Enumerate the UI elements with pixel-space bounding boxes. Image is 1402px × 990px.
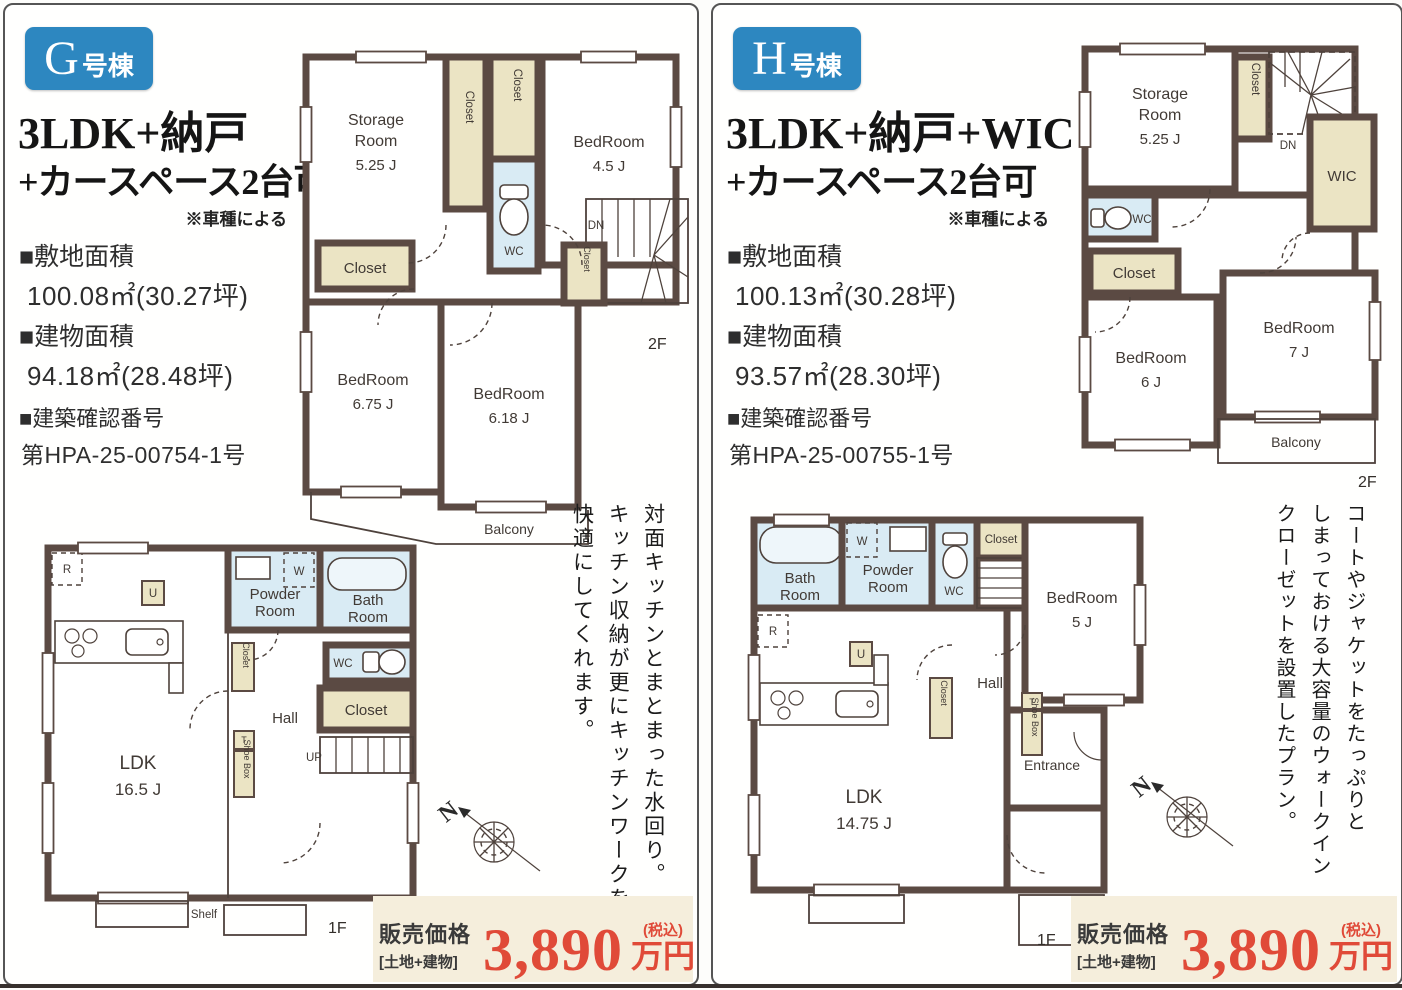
sink-icon: [236, 557, 270, 579]
wic-label: WIC: [1327, 168, 1356, 185]
building-area-value: 94.18㎡(28.48坪): [27, 356, 319, 393]
inner-hall-body: [1007, 808, 1104, 890]
price-sub-label: [土地+建物]: [1077, 951, 1169, 972]
room-size: 5.25 J: [1140, 131, 1181, 148]
floor-label-1f: 1F: [1037, 932, 1056, 949]
room-closet-a: [446, 57, 486, 209]
dn-label: DN: [588, 220, 605, 232]
land-area-label: ■敷地面積: [727, 237, 1027, 273]
floor-plan-h-2f: Storage Room 5.25 J Closet DN WIC WC Clo…: [1060, 37, 1390, 497]
confirmation-number-value: 第HPA-25-00755-1号: [729, 436, 1027, 470]
price-right: (税込) 万円: [631, 919, 695, 974]
toilet-icon: [1091, 207, 1131, 229]
room-label: Powder: [863, 562, 914, 579]
north-compass: N: [1121, 760, 1241, 855]
layout-title-line2: +カースペース2台可: [18, 153, 328, 205]
unit-letter: H: [752, 35, 787, 83]
unit-suffix: 号棟: [82, 34, 134, 83]
building-area-label: ■建物面積: [727, 317, 1027, 353]
shelf-label: Shelf: [191, 909, 218, 921]
shoe-box-label: Shoe Box: [1030, 697, 1040, 737]
land-area-value: 100.08㎡(30.27坪): [27, 276, 319, 313]
car-note: ※車種による: [727, 205, 1049, 230]
price-left: 販売価格 [土地+建物]: [1077, 917, 1169, 972]
bathtub-icon: [328, 558, 406, 590]
feature-description: コートやジャケットをたっぷりと しまっておける大容量のウォークイン クローゼット…: [1265, 503, 1373, 895]
room-label: BedRoom: [473, 386, 544, 403]
room-bedroom-5: [1025, 520, 1140, 700]
compass-spokes: [1167, 797, 1207, 837]
closet-label: Closet: [241, 642, 251, 668]
room-bedroom-618: [441, 302, 578, 507]
fridge-label: R: [769, 626, 777, 638]
stair-treads: [977, 568, 1025, 598]
unit-badge-g: G 号棟: [25, 27, 153, 90]
desc-column: キッチン収納が更にキッチンワークを: [602, 503, 635, 917]
dn-label: DN: [1280, 140, 1297, 152]
price-block: 販売価格 [土地+建物] 3,890 (税込) 万円: [1077, 917, 1393, 976]
desc-column: しまっておける大容量のウォークイン: [1303, 503, 1335, 895]
closet-label: Closet: [939, 680, 949, 706]
deck-outline: [809, 895, 904, 923]
porch-outline: [224, 905, 306, 935]
unit-badge-h: H 号棟: [733, 27, 861, 90]
price-sub-label: [土地+建物]: [379, 951, 471, 972]
room-label: Storage: [348, 112, 404, 129]
unit-letter: G: [44, 35, 79, 83]
north-label: N: [434, 796, 464, 828]
price-block: 販売価格 [土地+建物] 3,890 (税込) 万円: [379, 917, 695, 976]
wc-label: WC: [1132, 214, 1151, 226]
floor-label-2f: 2F: [1358, 474, 1377, 491]
price-left: 販売価格 [土地+建物]: [379, 917, 471, 972]
fridge-label: R: [63, 564, 71, 576]
price-value: 3,890: [1181, 925, 1321, 976]
hall-label: Hall: [272, 710, 298, 727]
room-label: BedRoom: [1046, 590, 1117, 607]
price-unit: 万円: [631, 940, 695, 974]
spec-list: ■敷地面積 100.08㎡(30.27坪) ■建物面積 94.18㎡(28.48…: [19, 233, 319, 474]
room-label: Room: [780, 587, 820, 604]
panel-unit-h: H 号棟 3LDK+納戸+WIC +カースペース2台可 ※車種による ■敷地面積…: [711, 3, 1402, 986]
price-tax-note: (税込): [643, 919, 683, 940]
balcony-label: Balcony: [484, 521, 534, 537]
room-label: Powder: [250, 586, 301, 603]
panel-unit-g: G 号棟 3LDK+納戸 +カースペース2台可 ※車種による ■敷地面積 100…: [3, 3, 699, 986]
hall-label: Hall: [977, 675, 1003, 692]
balcony-label: Balcony: [1271, 434, 1321, 450]
unit-suffix: 号棟: [790, 34, 842, 83]
closet-label: Closet: [985, 534, 1018, 546]
price-label: 販売価格: [379, 917, 471, 949]
feature-description: 対面キッチンとまとまった水回り。 キッチン収納が更にキッチンワークを 快適にして…: [563, 503, 673, 917]
building-area-value: 93.57㎡(28.30坪): [735, 356, 1027, 393]
washer-label: W: [857, 536, 868, 548]
closet-label: Closet: [345, 702, 388, 719]
confirmation-number-label: ■建築確認番号: [727, 401, 1027, 433]
sink-icon: [126, 629, 168, 655]
north-compass: N: [428, 785, 548, 880]
bathtub-icon: [760, 527, 842, 563]
toilet-icon: [943, 533, 967, 578]
floor-label-1f: 1F: [328, 920, 347, 937]
sink-icon: [836, 691, 878, 717]
closet-label: Closet: [463, 91, 475, 124]
wc-label: WC: [504, 246, 523, 258]
room-size: 6.75 J: [353, 396, 394, 413]
room-size: 5 J: [1072, 614, 1092, 631]
room-label: Room: [355, 133, 398, 150]
sink-icon: [890, 527, 926, 551]
room-label: BedRoom: [573, 134, 644, 151]
wc-label: WC: [944, 586, 963, 598]
closet-label: Closet: [1113, 265, 1156, 282]
closet-label: Closet: [344, 260, 387, 277]
flyer-page: G 号棟 3LDK+納戸 +カースペース2台可 ※車種による ■敷地面積 100…: [0, 0, 1402, 990]
desc-column: 快適にしてくれます。: [566, 503, 599, 917]
price-tax-note: (税込): [1341, 919, 1381, 940]
building-area-label: ■建物面積: [19, 317, 319, 353]
room-size: 7 J: [1289, 344, 1309, 361]
stairwell: [977, 558, 1025, 608]
deck-outline: [96, 901, 188, 927]
room-label: Room: [1139, 107, 1182, 124]
confirmation-number-value: 第HPA-25-00754-1号: [21, 436, 319, 470]
land-area-label: ■敷地面積: [19, 237, 319, 273]
desc-column: クローゼットを設置したプラン。: [1268, 503, 1300, 895]
washer-label: W: [294, 566, 305, 578]
layout-title-line1: 3LDK+納戸+WIC: [726, 97, 1074, 161]
shoe-box-label: Shoe Box: [242, 739, 252, 779]
up-label: UP: [306, 752, 322, 764]
confirmation-number-label: ■建築確認番号: [19, 401, 319, 433]
price-label: 販売価格: [1077, 917, 1169, 949]
closet-label: Closet: [511, 69, 523, 102]
north-label: N: [1127, 771, 1157, 803]
room-size: 6 J: [1141, 374, 1161, 391]
closet-label: Closet: [582, 246, 592, 272]
price-right: (税込) 万円: [1329, 919, 1393, 974]
entrance-label: Entrance: [1024, 757, 1080, 773]
spec-list: ■敷地面積 100.13㎡(30.28坪) ■建物面積 93.57㎡(28.30…: [727, 233, 1027, 474]
room-size: 6.18 J: [489, 410, 530, 427]
room-label: BedRoom: [337, 372, 408, 389]
room-size: 4.5 J: [593, 158, 626, 175]
floor-plan-g-2f: Storage Room 5.25 J Closet Closet WC Bed…: [296, 47, 696, 552]
room-label: BedRoom: [1263, 320, 1334, 337]
room-label: Room: [868, 579, 908, 596]
room-label: Room: [348, 609, 388, 626]
price-unit: 万円: [1329, 940, 1393, 974]
wc-label: WC: [333, 658, 352, 670]
layout-title-line2: +カースペース2台可: [726, 153, 1036, 205]
toilet-icon: [500, 185, 528, 235]
floor-label-2f: 2F: [648, 336, 667, 353]
room-ldk: [754, 608, 1007, 890]
layout-title-line1: 3LDK+納戸: [18, 97, 248, 161]
land-area-value: 100.13㎡(30.28坪): [735, 276, 1027, 313]
toilet-icon: [363, 650, 405, 674]
room-label: Storage: [1132, 86, 1188, 103]
room-label: Bath: [785, 570, 816, 587]
page-bottom-rule: [0, 984, 1402, 988]
cupboard-label: U: [857, 649, 865, 661]
room-size: 5.25 J: [356, 157, 397, 174]
car-note: ※車種による: [19, 205, 287, 230]
desc-column: 対面キッチンとまとまった水回り。: [637, 503, 670, 917]
room-label: LDK: [120, 753, 157, 774]
compass-spokes: [474, 822, 514, 862]
room-label: Room: [255, 603, 295, 620]
room-label: BedRoom: [1115, 350, 1186, 367]
price-value: 3,890: [483, 925, 623, 976]
room-label: LDK: [846, 787, 883, 808]
desc-column: コートやジャケットをたっぷりと: [1338, 503, 1370, 895]
closet-label: Closet: [1249, 63, 1261, 96]
room-size: 14.75 J: [836, 814, 892, 833]
room-label: Bath: [353, 592, 384, 609]
room-bedroom-6: [1085, 297, 1217, 445]
floor-plan-g-1f: Powder Room Bath Room W WC Closet Closet…: [38, 533, 458, 948]
room-size: 16.5 J: [115, 780, 161, 799]
cupboard-label: U: [149, 588, 157, 600]
